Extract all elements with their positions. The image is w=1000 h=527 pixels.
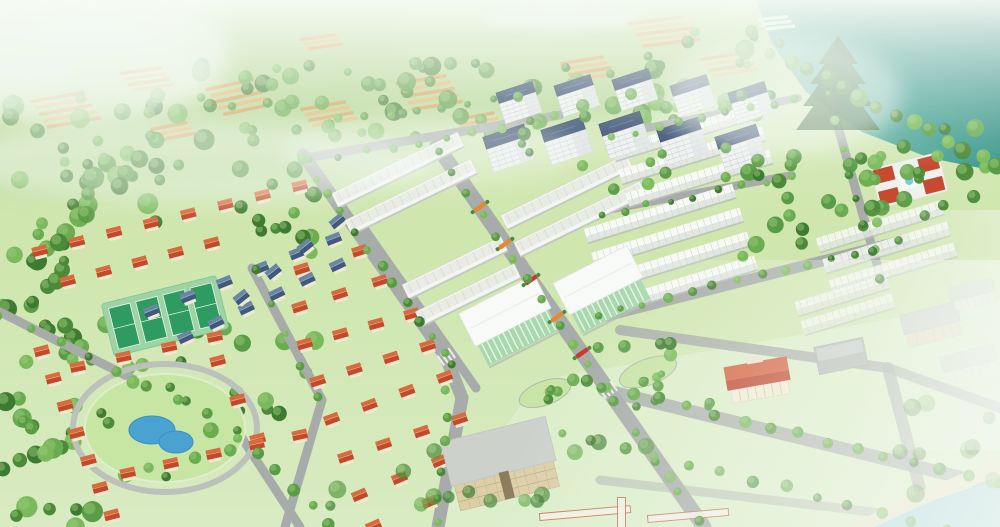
tree [288,207,300,219]
tree [37,445,54,462]
tree [396,464,412,480]
tree [10,509,22,521]
tree [448,360,456,368]
tree [443,413,452,422]
tree [287,484,300,497]
tree [25,422,38,435]
tree [252,214,265,227]
park-pond [159,431,193,453]
tree [351,228,359,236]
tree [689,195,696,202]
tree [781,192,794,205]
tree [224,444,236,456]
tree [165,382,175,392]
tree [642,200,649,207]
tree [43,503,56,516]
tree [296,362,305,371]
tree [772,174,787,189]
tree [491,232,500,241]
tree [767,216,784,233]
aerial-render-viewport: Aerial 3D rendering of a master-planned … [0,0,1000,527]
tree [821,194,836,209]
tree [835,203,849,217]
tree [414,316,425,327]
tree [36,217,48,229]
tree [309,501,318,510]
tree [659,167,671,179]
tree [103,417,115,429]
tree [82,501,103,522]
right-edge-fade [858,210,1000,450]
tree [50,233,68,251]
tree [764,180,770,186]
tree [440,436,450,446]
tree [328,480,346,498]
tree [796,223,809,236]
tree [13,453,27,467]
tree [161,472,171,482]
tree [913,167,925,179]
tree [896,191,912,207]
tree [851,251,859,259]
tree [111,367,121,377]
tree [443,491,455,503]
tree [429,333,436,340]
tree [737,181,745,189]
tree [441,349,449,357]
tree [434,495,442,503]
tree [6,247,23,264]
tree [313,392,322,401]
mist-patch [280,116,580,184]
tree [173,395,183,405]
tree [852,195,859,202]
tree [252,447,264,459]
tree [387,277,398,288]
tree [141,380,152,391]
tree [143,463,153,473]
tree [70,503,82,515]
tree [753,169,765,181]
tree [403,298,412,307]
masterplan-aerial-render [0,0,1000,527]
tree [783,209,795,221]
tree [668,199,674,205]
tree [608,183,620,195]
tree [85,353,93,361]
tree [234,335,251,352]
tree [721,172,731,182]
tree [126,376,139,389]
tree [189,452,201,464]
tree [57,337,67,347]
tree [378,261,389,272]
tree [336,207,344,215]
tree [621,208,629,216]
tree [434,519,442,527]
mist-patch [662,35,902,155]
tree [202,408,213,419]
tree [789,173,796,180]
tree [203,422,219,438]
tree [363,246,371,254]
tree [869,174,880,185]
tree [437,467,446,476]
tree [938,200,949,211]
tree [26,296,39,309]
tree [57,318,73,334]
tree [268,300,275,307]
tree [441,385,450,394]
tree [96,408,106,418]
tree [795,237,808,250]
tree [325,501,335,511]
tree [27,325,35,333]
tree [279,221,292,234]
tree [599,212,606,219]
tree [748,236,765,253]
tree [845,171,854,180]
tree [282,331,288,337]
tree [78,206,95,223]
tree [462,485,475,498]
tree [19,355,33,369]
tree [59,256,69,266]
tree [462,189,471,198]
tree [233,434,242,443]
tree [426,443,442,459]
tree [967,190,980,203]
tree [251,265,260,274]
tree [33,229,45,241]
tree [257,392,273,408]
tree [715,186,723,194]
tree [480,211,487,218]
tree [642,178,655,191]
tree [269,464,280,475]
tree [483,494,497,508]
tree [233,426,242,435]
tree [271,406,286,421]
